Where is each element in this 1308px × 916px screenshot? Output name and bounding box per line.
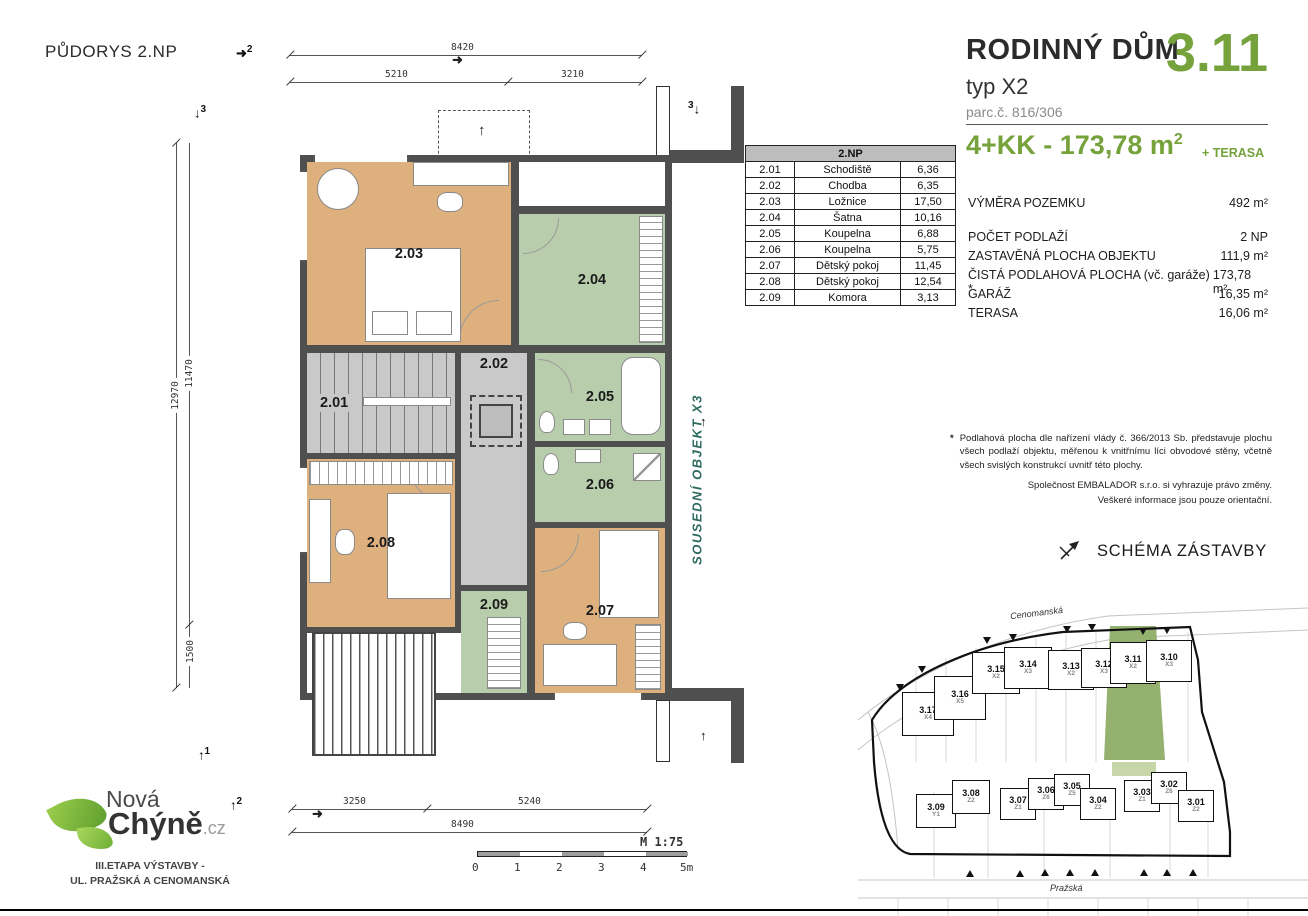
site-heading: SCHÉMA ZÁSTAVBY — [1097, 542, 1267, 561]
sink — [589, 419, 611, 435]
dim-line-top-2 — [290, 82, 642, 83]
terrace-pergola — [312, 632, 436, 756]
house-3-04: 3.04Z2 — [1080, 788, 1116, 820]
table-row: 2.08Dětský pokoj12,54 — [746, 274, 956, 290]
rooms-table-header: 2.NP — [746, 146, 956, 162]
scale-segment — [562, 852, 604, 856]
armchair — [317, 168, 359, 210]
scale-tick-3: 3 — [598, 861, 605, 874]
room-loznice: 2.03 — [307, 162, 511, 345]
logo-tld: .cz — [203, 818, 226, 838]
scale-bar — [477, 851, 687, 857]
room-komora: 2.09 — [461, 591, 527, 693]
dim-top-left: 5210 — [382, 69, 411, 80]
shower — [633, 453, 661, 481]
spec-row: TERASA16,06 m² — [968, 306, 1268, 325]
up-arrow-icon: ↑ — [478, 122, 486, 139]
table-row: 2.05Koupelna6,88 — [746, 226, 956, 242]
dim-line-top-1 — [290, 55, 642, 56]
room-label: 2.06 — [586, 477, 614, 493]
disclaimer-line-2: Veškeré informace jsou pouze orientační. — [950, 493, 1272, 508]
stair-handrail — [363, 397, 451, 406]
room-detsky-pokoj-2: 2.08 — [307, 459, 455, 627]
desk — [413, 162, 509, 186]
house-3-01: 3.01Z2 — [1178, 790, 1214, 822]
room-label: 2.08 — [367, 535, 395, 551]
house-3-14: 3.14X3 — [1004, 647, 1052, 689]
table-row: 2.02Chodba6,35 — [746, 178, 956, 194]
room-detsky-pokoj-1: 2.07 — [535, 528, 665, 693]
scale-tick-2: 2 — [556, 861, 563, 874]
wardrobe — [639, 216, 663, 343]
shaft — [470, 395, 522, 447]
bottom-rule — [0, 909, 1308, 911]
north-arrow-icon — [1054, 534, 1086, 566]
table-row: 2.03Ložnice17,50 — [746, 194, 956, 210]
footnote: * Podlahová plocha dle nařízení vlády č.… — [950, 432, 1272, 472]
table-row: 2.01Schodiště6,36 — [746, 162, 956, 178]
unit-type: typ X2 — [966, 74, 1028, 100]
section-arrow-icon: ↑ — [700, 728, 707, 743]
dim-left-main: 11470 — [184, 356, 195, 391]
house-3-10: 3.10X3 — [1146, 640, 1192, 682]
land-area-label: VÝMĚRA POZEMKU — [968, 196, 1085, 215]
dim-left-total: 12970 — [170, 378, 181, 413]
site-plan: Cenomanská Pražská 3.17X4 3.16X5 3.15X2 … — [858, 592, 1308, 916]
room-koupelna-1: 2.05 — [535, 353, 665, 441]
unit-number: 3.11 — [1138, 22, 1268, 84]
spec-row: GARÁŽ16,35 m² — [968, 287, 1268, 306]
window — [300, 466, 307, 554]
scale-segment — [646, 852, 688, 856]
pillow — [416, 311, 452, 335]
room-label: 2.02 — [480, 356, 508, 372]
scale-ratio: M 1:75 — [640, 835, 683, 849]
scale-tick-0: 0 — [472, 861, 479, 874]
layout-sup: 2 — [1174, 131, 1183, 148]
wardrobe — [309, 461, 453, 485]
land-area-row: VÝMĚRA POZEMKU 492 m² — [968, 196, 1268, 215]
terrace-note: + TERASA — [1202, 146, 1264, 160]
spec-row: ZASTAVĚNÁ PLOCHA OBJEKTU111,9 m² — [968, 249, 1268, 268]
scale-segment — [520, 852, 562, 856]
site-plan-drawing — [858, 592, 1308, 916]
wall — [535, 441, 665, 447]
room-schodiste: 2.01 — [307, 353, 455, 453]
toilet — [543, 453, 559, 475]
desk — [309, 499, 331, 583]
chair — [335, 529, 355, 555]
logo-word-2: Chýně.cz — [108, 806, 226, 842]
layout-headline: 4+KK - 173,78 m2 — [966, 130, 1183, 161]
house-3-08: 3.08Z2 — [952, 780, 990, 814]
disclaimer: Společnost EMBALADOR s.r.o. si vyhrazuje… — [950, 478, 1272, 508]
section-marker: ↑1 — [198, 746, 210, 762]
sink — [563, 419, 585, 435]
window — [553, 693, 643, 700]
logo: Nová Chýně.cz III.ETAPA VÝSTAVBY - UL. P… — [40, 780, 270, 900]
door-arc — [523, 218, 559, 254]
page: PŮDORYS 2.NP 8420 5210 3210 ➜ ➜2 ↓3 3↓ ↑… — [0, 0, 1308, 916]
wall — [511, 162, 519, 353]
pillow — [372, 311, 408, 335]
toilet — [539, 411, 555, 433]
dim-left-small: 1500 — [185, 637, 196, 666]
wall — [461, 585, 527, 591]
dim-top-right: 3210 — [558, 69, 587, 80]
neighbor-wall — [670, 688, 744, 701]
room-label: 2.05 — [586, 389, 614, 405]
bed — [365, 248, 461, 342]
window — [300, 170, 307, 262]
chair — [437, 192, 463, 212]
spec-list: POČET PODLAŽÍ2 NP ZASTAVĚNÁ PLOCHA OBJEK… — [968, 230, 1268, 325]
rooms-table: 2.NP 2.01Schodiště6,36 2.02Chodba6,35 2.… — [745, 145, 956, 306]
house-3-09: 3.09Y1 — [916, 794, 956, 828]
wall — [535, 522, 665, 528]
parcel-number: parc.č. 816/306 — [966, 104, 1063, 120]
sink — [575, 449, 601, 463]
entry-arrow-icon: ➜ — [312, 806, 323, 822]
divider — [966, 124, 1268, 125]
neighbor-wall — [670, 150, 744, 163]
table-row: 2.09Komora3,13 — [746, 290, 956, 306]
wardrobe — [635, 624, 661, 690]
dim-line-bottom-2 — [292, 832, 647, 833]
layout-text: 4+KK - 173,78 m — [966, 130, 1174, 160]
wall — [527, 353, 535, 693]
room-satna: 2.04 — [519, 214, 665, 345]
room-label: 2.07 — [586, 603, 614, 619]
spec-row: POČET PODLAŽÍ2 NP — [968, 230, 1268, 249]
section-marker: ➜2 — [236, 44, 252, 61]
footnote-star: * — [950, 432, 954, 472]
wall — [307, 345, 665, 353]
scale-segment — [604, 852, 646, 856]
wall — [455, 353, 461, 633]
land-area-value: 492 m² — [1229, 196, 1268, 215]
wall — [307, 453, 455, 459]
shaft-inner — [479, 404, 513, 438]
room-koupelna-2: 2.06 — [535, 447, 665, 522]
table-row: 2.04Šatna10,16 — [746, 210, 956, 226]
scale-tick-4: 4 — [640, 861, 647, 874]
section-marker: 3↓ — [688, 100, 700, 116]
scale-tick-5: 5m — [680, 861, 693, 874]
bed — [387, 493, 451, 599]
disclaimer-line-1: Společnost EMBALADOR s.r.o. si vyhrazuje… — [950, 478, 1272, 493]
dim-line-bottom-1 — [292, 809, 647, 810]
window — [313, 155, 409, 162]
room-label: 2.01 — [317, 394, 351, 412]
chair — [563, 622, 587, 640]
entry-arrow-icon: ➜ — [452, 52, 463, 68]
door-arc — [538, 359, 572, 393]
page-title: PŮDORYS 2.NP — [45, 42, 177, 62]
table-row: 2.06Koupelna5,75 — [746, 242, 956, 258]
logo-brand: Chýně — [108, 806, 203, 841]
section-marker: ↓3 — [194, 104, 206, 120]
table-row: 2.07Dětský pokoj11,45 — [746, 258, 956, 274]
scale-segment — [478, 852, 520, 856]
wall — [519, 206, 665, 214]
room-label: 2.04 — [578, 272, 606, 288]
shelving — [487, 617, 521, 689]
street-label-bottom: Pražská — [1050, 883, 1083, 893]
footnote-text: Podlahová plocha dle nařízení vlády č. 3… — [960, 432, 1272, 472]
dim-bottom-total: 8490 — [448, 819, 477, 830]
spec-row: ČISTÁ PODLAHOVÁ PLOCHA (vč. garáže) *173… — [968, 268, 1268, 287]
neighbor-building-label: SOUSEDNÍ OBJEKT X3 — [690, 330, 705, 630]
desk — [543, 644, 617, 686]
room-label: 2.03 — [395, 246, 423, 262]
room-chodba: 2.02 — [461, 353, 527, 585]
room-label: 2.09 — [480, 597, 508, 613]
dim-bottom-mid: 5240 — [515, 796, 544, 807]
dim-line-left-2 — [189, 143, 190, 688]
neighbor-wall — [731, 86, 744, 150]
chimney — [656, 700, 670, 762]
bathtub — [621, 357, 661, 435]
door-arc — [459, 300, 499, 340]
door-arc — [541, 534, 579, 572]
scale-tick-1: 1 — [514, 861, 521, 874]
logo-tagline-1: III.ETAPA VÝSTAVBY - — [40, 860, 260, 872]
neighbor-wall — [731, 701, 744, 763]
dim-bottom-left: 3250 — [340, 796, 369, 807]
dim-line-left-1 — [176, 143, 177, 688]
logo-tagline-2: UL. PRAŽSKÁ A CENOMANSKÁ — [40, 875, 260, 887]
floor-plan: 2.03 2.04 2.01 2.02 2.05 — [300, 155, 672, 700]
